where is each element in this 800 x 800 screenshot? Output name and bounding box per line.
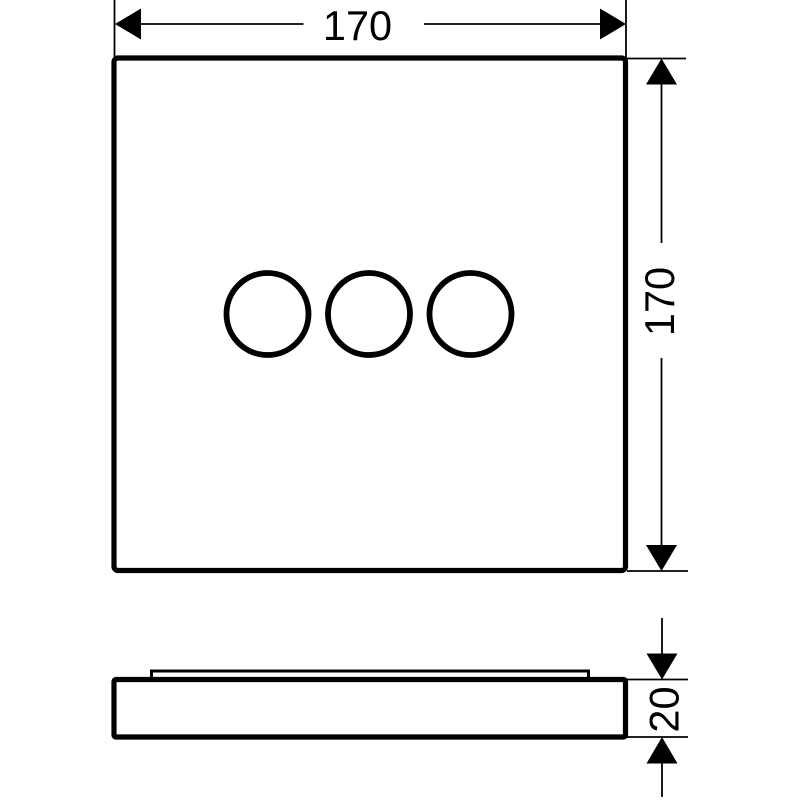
svg-text:170: 170: [323, 2, 392, 49]
svg-text:170: 170: [636, 267, 683, 336]
svg-text:20: 20: [641, 686, 688, 732]
